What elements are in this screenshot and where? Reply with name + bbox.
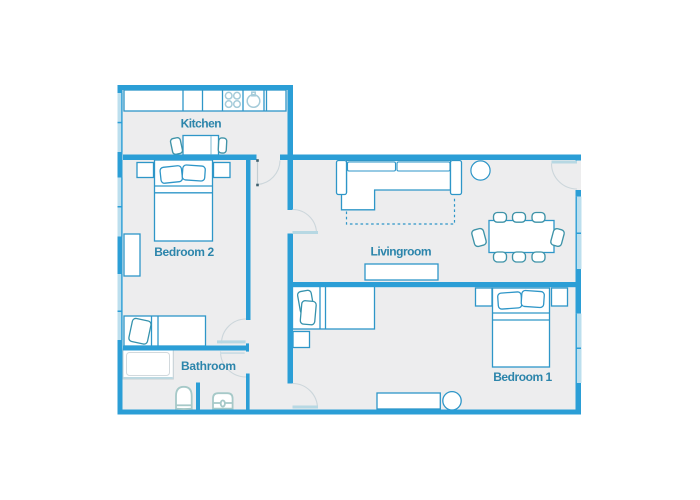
svg-text:Bathroom: Bathroom — [181, 359, 236, 373]
svg-text:Bedroom 2: Bedroom 2 — [154, 245, 214, 259]
svg-text:Kitchen: Kitchen — [181, 117, 222, 131]
svg-text:Livingroom: Livingroom — [371, 245, 432, 259]
svg-text:Bedroom 1: Bedroom 1 — [493, 370, 552, 384]
